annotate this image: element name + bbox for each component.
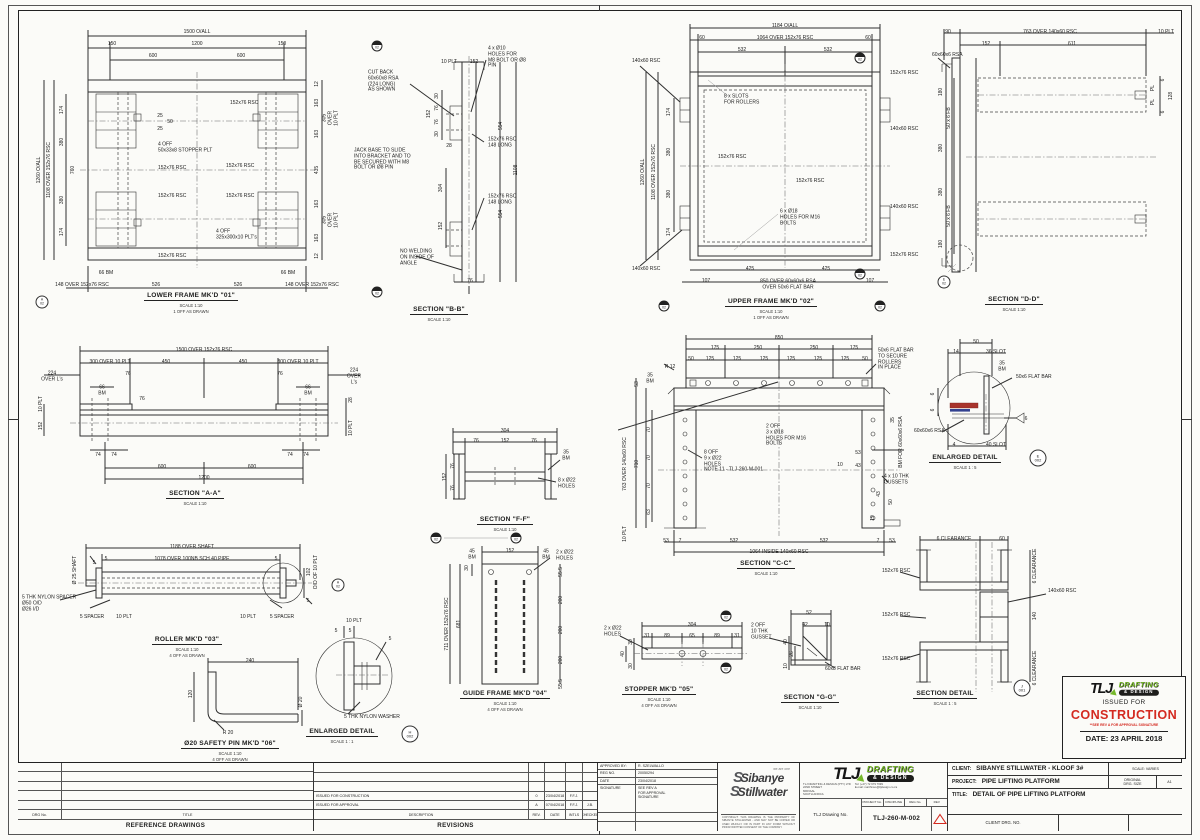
dim-label: 31 [734, 634, 740, 640]
dim-label: 6 CLEARANCE [937, 537, 972, 543]
revisions-col-rev: REV. [529, 810, 545, 819]
reference-empty-row [18, 782, 313, 791]
tlj-design-text: & DESIGN [1118, 689, 1158, 695]
dim-label: 7 [877, 539, 880, 545]
dim-label: PL [1151, 99, 1157, 105]
tlj-drafting-text: DRAFTING [867, 765, 914, 774]
section-marker: D 02 [855, 53, 866, 64]
view-scale: SCALE 1:10 [618, 571, 914, 576]
tlj-address: TLJ DRAFTING & DESIGN (PTY) LTD 22ND STR… [803, 783, 851, 797]
dim-label: 125 [814, 357, 822, 363]
dim-label: 53 [663, 539, 669, 545]
dim-label: 174 [60, 228, 66, 236]
dim-label: 180 [939, 240, 945, 248]
view-section-dd: 90763 OVER 140x60 RSC10 PLT15261160x60x6… [930, 20, 1188, 312]
dim-label: 40 [784, 639, 790, 645]
view-section-aa: 1500 OVER 152x76 RSC300 OVER 10 PLT45045… [30, 338, 360, 506]
dim-label: 600 [237, 54, 245, 60]
dim-label: 760 [71, 166, 77, 174]
drawing-number-row: TLJ Drawing No. PROJECT No. DISCIPLINE R… [800, 798, 947, 831]
dim-label: 5 [389, 637, 392, 643]
dim-label: 128 [1169, 92, 1175, 100]
dim-label: 380 [939, 188, 945, 196]
revisions-band: REVISIONS [314, 820, 597, 831]
dim-label: 175 [711, 346, 719, 352]
approval-empty-row [598, 822, 717, 831]
dim-label: 19 [871, 515, 877, 521]
section-marker: B 02 [372, 287, 383, 298]
dim-label: 148 OVER 152x76 RSC [55, 283, 109, 289]
dim-label: NO WELDING ON INSIDE OF ANGLE [400, 249, 434, 266]
tlj-logo: TLJ DRAFTING & DESIGN [1090, 681, 1159, 695]
construction-stamp: TLJ DRAFTING & DESIGN ISSUED FOR CONSTRU… [1062, 676, 1186, 759]
sibanye-line1: Sibanye [741, 771, 784, 785]
section-detail-j-title: SECTION DETAIL SCALE 1 : 5 [880, 682, 1080, 706]
original-size-label: ORIGINAL DRG. SIZE [1108, 776, 1156, 788]
dim-label: 711 OVER 152x76 RSC [445, 597, 451, 650]
tlj-block: TLJ DRAFTING & DESIGN TLJ DRAFTING & DES… [800, 763, 948, 831]
dim-label: 60x60x6 RSA [932, 53, 963, 59]
revision-checked [583, 792, 597, 800]
dim-label: 125 [733, 357, 741, 363]
view-title: SECTION "F-F" [477, 516, 533, 525]
revision-empty-row [314, 782, 597, 792]
scale-value: SCALE: VARIES [1108, 763, 1182, 775]
view-scale: SCALE 1 : 5 [912, 465, 1018, 470]
dim-label: 10 PLT [349, 420, 355, 436]
view-title: SECTION "A-A" [166, 490, 224, 499]
dim-label: 1200 [198, 476, 209, 482]
dim-label: 30 [629, 639, 635, 645]
dim-label: 300 OVER 10 PLT [89, 360, 130, 366]
view-note: 4 OFF AS DRAWN [20, 653, 354, 658]
dim-label: 305 OVER 10 PLT [322, 108, 339, 129]
dim-label: 152x76 RSC [882, 657, 910, 663]
dim-label: 425 [822, 267, 830, 273]
lower-frame-geometry [30, 14, 352, 314]
dim-label: 76 [473, 439, 479, 445]
view-note: 1 OFF AS DRAWN [628, 315, 914, 320]
view-scale: SCALE 1:10 [350, 317, 528, 322]
dim-label: 152 [470, 60, 478, 66]
view-scale: SCALE 1:10 [20, 647, 354, 652]
sibanye-block: we are one SSibanye SStillwater COPYRIGH… [718, 763, 800, 831]
approval-label: APPROVED BY: [598, 763, 636, 769]
dim-label: 140x60 RSC [1048, 589, 1076, 595]
dim-label: 2 x Ø22 HOLES [604, 626, 622, 638]
section-marker: D 02 [855, 269, 866, 280]
dim-label: 763 OVER 140x60 RSC [623, 437, 629, 491]
dim-label: 380 [60, 196, 66, 204]
col-project-no: PROJECT No. [862, 799, 884, 806]
dim-label: 12 [315, 253, 321, 259]
dim-label: 76 [451, 463, 457, 469]
dim-label: 1500 O/ALL [184, 30, 211, 36]
dim-label: 1064 OVER 152x76 RSC [757, 36, 813, 42]
view-scale: SCALE 1 : 1 [292, 739, 392, 744]
tlj-design-text: & DESIGN [867, 775, 914, 782]
dim-label: 152x76 RSC [890, 71, 918, 77]
revision-rev: 0 [529, 792, 545, 800]
dim-label: 50x6 FLAT BAR [1016, 375, 1052, 381]
dim-label: 175 [850, 346, 858, 352]
reference-drawings-table: DRG No. TITLE REFERENCE DRAWINGS [18, 763, 314, 831]
approval-value: 23/04/2018 [636, 778, 717, 784]
dim-label: 35 BM [646, 373, 654, 385]
dim-label: 14 [953, 350, 959, 356]
original-size-value: A1 [1156, 776, 1182, 788]
dim-label: 152x76 RSC [890, 253, 918, 259]
revision-triangle-icon [931, 807, 947, 831]
section-marker: H 002 [402, 726, 419, 743]
dim-label: 60 [865, 36, 871, 42]
revisions-col-intls: INTLS [566, 810, 583, 819]
revisions-header-row: DESCRIPTION REV. DATE INTLS CHECKED [314, 810, 597, 820]
dim-label: 53 [889, 539, 895, 545]
reference-col-drg-no: DRG No. [18, 810, 62, 819]
revisions-col-date: DATE [545, 810, 566, 819]
dim-label: 50 [167, 120, 173, 126]
dim-label: 6 CLEARANCE [1033, 549, 1039, 584]
view-scale: SCALE 1:10 [420, 701, 590, 706]
dim-label: 152x76 RSC [226, 164, 254, 170]
dim-label: 380 [60, 138, 66, 146]
dim-label: 89 [714, 634, 720, 640]
dim-label: 5 SPACER [80, 615, 104, 621]
dim-label: 25 [157, 127, 163, 133]
dim-label: 5 THK NYLON WASHER [344, 715, 400, 721]
dim-label: 40 SLOT [986, 443, 1006, 449]
dim-label: PL [1151, 85, 1157, 91]
dim-label: 10 PLT [346, 619, 362, 625]
dim-label: 63 [647, 509, 653, 515]
dim-label: 35 BM [562, 450, 570, 462]
project-label: PROJECT: [948, 776, 979, 788]
dim-label: 150 [278, 42, 286, 48]
view-title: ENLARGED DETAIL [306, 728, 377, 737]
dim-label: 10 [837, 463, 843, 469]
dim-label: 1108 OVER 152x76 RSC [47, 142, 53, 198]
dim-label: 6 CLEARANCE [1033, 651, 1039, 686]
drawing-title-label: TITLE: [948, 789, 970, 814]
view-title: Ø20 SAFETY PIN MK'D "06" [181, 740, 279, 749]
dim-label: 850 OVER 60x60x6 RSA OVER 50x6 FLAT BAR [760, 279, 816, 291]
section-marker: F 02 [511, 533, 522, 544]
approval-row: APPROVED BY:R. SZELWALLO [598, 763, 717, 770]
revision-description: ISSUED FOR APPROVAL [314, 801, 529, 809]
dim-label: 40 [621, 651, 627, 657]
client-value: SIBANYE STILLWATER - KLOOF 3# [973, 763, 1108, 775]
dim-label: 1200 [191, 42, 202, 48]
revision-intls: F.F.J. [566, 801, 583, 809]
dim-label: 120 [189, 690, 195, 698]
dim-label: 532 [738, 48, 746, 54]
view-scale: SCALE 1:10 [30, 501, 360, 506]
revision-date: 23/04/2018 [545, 792, 566, 800]
col-rev: REV [927, 799, 948, 806]
dim-label: 152 [427, 110, 433, 118]
dim-label: 55.5 [559, 567, 565, 577]
section-marker: H 02 [332, 579, 345, 592]
dim-label: 240 [246, 659, 254, 665]
copyright-text: COPYRIGHT: THIS DRAWING IS THE PROPERTY … [721, 814, 796, 829]
view-title: GUIDE FRAME MK'D "04" [460, 690, 550, 699]
project-value: PIPE LIFTING PLATFORM [979, 776, 1108, 788]
dim-label: 1500 OVER 152x76 RSC [176, 348, 232, 354]
dim-label: 8 x Ø22 HOLES [558, 478, 576, 490]
dim-label: 74 [303, 453, 309, 459]
dim-label: 60 [699, 36, 705, 42]
drawing-number-value: TLJ-260-M-002 [862, 815, 931, 822]
dim-label: 6 [931, 409, 937, 412]
dim-label: 35 [891, 417, 897, 423]
section-ff-title: SECTION "F-F" SCALE 1:10 [420, 508, 590, 532]
col-reg-no: REG No. [905, 799, 927, 806]
dim-label: 152x76 RSC [158, 166, 186, 172]
dim-label: 50 [688, 357, 694, 363]
section-marker: A 02 [36, 296, 49, 309]
sibanye-logo: SSibanye SStillwater [721, 771, 796, 799]
dim-label: 36 SLOT [986, 350, 1006, 356]
dim-label: R 12 [665, 365, 676, 371]
dim-label: CUT BACK 60x60x8 RSA (224 LONG) AS SHOWN [368, 71, 399, 94]
dim-label: 6 x Ø18 HOLES FOR M16 BOLTS [780, 209, 820, 226]
dim-label: 152x76 RSC [718, 155, 746, 161]
dim-label: 554 [499, 210, 505, 218]
dim-label: 150 [108, 42, 116, 48]
dim-label: 5 [275, 557, 278, 563]
dim-label: 1108 OVER 152x76 RSC [652, 144, 658, 200]
dim-label: 611 [1068, 42, 1076, 48]
dim-label: 50x6 FLAT BAR TO SECURE ROLLERS IN PLACE [878, 349, 914, 372]
dim-label: 4 [953, 443, 956, 449]
col-discipline: DISCIPLINE [884, 799, 906, 806]
dim-label: 7 [679, 539, 682, 545]
dim-label: 380 [667, 190, 673, 198]
dim-label: 200 [559, 656, 565, 664]
dim-label: 45 BM [468, 549, 476, 561]
revision-intls: F.F.J. [566, 792, 583, 800]
view-title: SECTION "D-D" [985, 296, 1043, 305]
dim-label: 6 [1025, 417, 1028, 423]
dim-label: 152x76 RSC [230, 101, 258, 107]
dim-label: 42 [802, 623, 808, 629]
dim-label: 76 [451, 485, 457, 491]
view-title: ENLARGED DETAIL [929, 454, 1000, 463]
dim-label: 681 [457, 620, 463, 628]
dim-label: 435 [315, 166, 321, 174]
view-scale: SCALE 1:10 [600, 697, 718, 702]
revision-checked: J.B. [583, 801, 597, 809]
dim-label: 4 OFF 50x33x8 STOPPER PLT [158, 142, 212, 154]
section-marker: G 02 [721, 611, 732, 622]
dim-label: 450 [239, 360, 247, 366]
dim-label: 152 [39, 422, 45, 430]
dim-label: 224 OVER L's [347, 368, 361, 385]
dim-label: 304 [688, 623, 696, 629]
dim-label: 152 [982, 42, 990, 48]
dim-label: 53 [855, 451, 861, 457]
dim-label: 174 [60, 106, 66, 114]
approval-label: REG NO. [598, 770, 636, 776]
section-marker: F 02 [431, 533, 442, 544]
dim-label: 26 [790, 651, 796, 657]
dim-label: 28 [446, 144, 452, 150]
tlj-wedge-icon [856, 773, 865, 782]
dim-label: 31 [644, 634, 650, 640]
section-bb-title: SECTION "B-B" SCALE 1:10 [350, 298, 528, 322]
dim-label: 1078 OVER 100NB SCH 40 PIPE [154, 557, 229, 563]
dim-label: 140x60 RSC [632, 267, 660, 273]
dim-label: BM FOR 60x60x6 RSA [899, 416, 905, 467]
dim-label: 6 [1161, 111, 1167, 114]
dim-label: 380 [939, 144, 945, 152]
view-scale: SCALE 1:10 [745, 705, 875, 710]
view-title: SECTION "B-B" [410, 306, 468, 315]
dim-label: 152x76 RSC [158, 194, 186, 200]
sibanye-line2: Stillwater [738, 785, 787, 799]
dim-label: 66 BM [304, 385, 312, 397]
dim-label: 30 [465, 565, 471, 571]
dim-label: 25 [157, 114, 163, 120]
dim-label: 532 [820, 539, 828, 545]
dim-label: 6 [1161, 79, 1167, 82]
section-marker: G 02 [721, 663, 732, 674]
section-aa-title: SECTION "A-A" SCALE 1:10 [30, 482, 360, 506]
dim-label: 30 [435, 131, 441, 137]
view-title: UPPER FRAME MK'D "02" [725, 298, 817, 307]
approval-row: REG NO.20050294 [598, 770, 717, 777]
dim-label: 5 [349, 629, 352, 635]
approval-row: DATE23/04/2018 [598, 778, 717, 785]
dim-label: 152x76 RSC 148 LONG [488, 194, 516, 206]
dim-label: 5 [335, 629, 338, 635]
dim-label: 60x60x6 RSA [914, 429, 945, 435]
revision-row: ISSUED FOR APPROVAL A 07/04/2018 F.F.J. … [314, 801, 597, 810]
dim-label: 60 [999, 537, 1005, 543]
view-scale: SCALE 1:10 [150, 751, 310, 756]
dim-label: 30 [629, 663, 635, 669]
view-section-ff: 3047615276152767635 BM8 x Ø22 HOLES SECT… [420, 420, 590, 532]
view-lower-frame-01: 1500 O/ALL15012001506006001260 O/ALL1108… [30, 14, 352, 314]
dim-label: 710 [635, 460, 641, 468]
dim-label: 65 [689, 634, 695, 640]
view-enlarged-detail-e: 501436 SLOT35 BM50x6 FLAT BAR6660x60x6 R… [912, 336, 1062, 470]
stopper-title: STOPPER MK'D "05" SCALE 1:10 4 OFF AS DR… [600, 678, 748, 708]
view-note: 1 OFF AS DRAWN [30, 309, 352, 314]
dim-label: 74 [111, 453, 117, 459]
dim-label: 174 [667, 228, 673, 236]
dim-label: 140x60 RSC [890, 127, 918, 133]
tlj-wedge-icon [1109, 688, 1117, 695]
dim-label: 50 [862, 357, 868, 363]
section-marker: B 02 [372, 41, 383, 52]
drawing-number-label: TLJ Drawing No. [800, 799, 862, 831]
dim-label: 76 [139, 397, 145, 403]
dim-label: 152x76 RSC [158, 254, 186, 260]
stamp-date: DATE: 23 APRIL 2018 [1080, 731, 1169, 743]
dim-label: 4 x Ø10 HOLES FOR M8 BOLT OR Ø8 PIN [488, 47, 528, 70]
dim-label: 50 x 6 FB [947, 107, 953, 128]
dim-label: 10 [824, 623, 830, 629]
dim-label: 53 [635, 381, 641, 387]
dim-label: 250 [810, 346, 818, 352]
section-marker: C 02 [659, 301, 670, 312]
dim-label: 140 [1033, 612, 1039, 620]
reference-empty-row [18, 791, 313, 800]
dim-label: 600 [158, 465, 166, 471]
dim-label: 224 OVER L's [41, 371, 63, 383]
dim-label: 1064 INSIDE 140x60 RSC [750, 550, 809, 556]
dim-label: JACK BASE TO SLIDE INTO BRACKET AND TO B… [354, 149, 411, 172]
dim-label: 125 [760, 357, 768, 363]
dim-label: 526 [234, 283, 242, 289]
dim-label: 55.5 [559, 679, 565, 689]
dim-label: 8 x SLOTS FOR ROLLERS [724, 94, 759, 106]
view-title: SECTION DETAIL [913, 690, 976, 699]
revision-empty-row [314, 763, 597, 773]
upper-frame-geometry [628, 12, 914, 320]
dim-label: 532 [730, 539, 738, 545]
dim-label: 200 [559, 596, 565, 604]
tlj-logo: TLJ DRAFTING & DESIGN [833, 765, 914, 782]
drawing-number-headers: PROJECT No. DISCIPLINE REG No. REV [862, 799, 947, 807]
revision-empty-row [314, 773, 597, 783]
dim-label: 10 PLT [623, 526, 629, 542]
view-note: 4 OFF AS DRAWN [600, 703, 718, 708]
client-drg-no-label: CLIENT DRG. NO. [948, 815, 1058, 831]
border-tick [599, 5, 600, 11]
dim-label: 50 x 6 FB [947, 205, 953, 226]
dim-label: 300 OVER 10 PLT [277, 360, 318, 366]
dim-label: 163 [315, 130, 321, 138]
dim-label: 304 [501, 429, 509, 435]
section-gg-title: SECTION "G-G" SCALE 1:10 [745, 686, 875, 710]
section-dd-geometry [930, 20, 1188, 312]
dim-label: 180 [939, 88, 945, 96]
dim-label: 250 [754, 346, 762, 352]
dim-label: 450 [162, 360, 170, 366]
dim-label: 30 [435, 93, 441, 99]
client-label: CLIENT: [948, 763, 973, 775]
reference-col-title: TITLE [62, 810, 313, 819]
border-tick [8, 419, 19, 420]
section-marker: E 02 [938, 276, 951, 289]
dim-label: 52 [806, 611, 812, 617]
revisions-table: ISSUED FOR CONSTRUCTION 0 23/04/2018 F.F… [314, 763, 598, 831]
dim-label: 304 [439, 184, 445, 192]
view-title: STOPPER MK'D "05" [622, 686, 697, 695]
dim-label: 163 [315, 234, 321, 242]
approval-block: APPROVED BY:R. SZELWALLO REG NO.20050294… [598, 763, 718, 831]
dim-label: 4 OFF 325x300x10 PLT's [216, 229, 257, 241]
dim-label: 66 BM [99, 271, 113, 277]
dim-label: Ø 25 SHAFT [73, 556, 79, 585]
dim-label: 532 [824, 48, 832, 54]
dim-label: 10 PLT [116, 615, 132, 621]
dim-label: 10 PLT [1158, 30, 1174, 36]
view-upper-frame-02: 1184 O/ALL601064 OVER 152x76 RSC60532532… [628, 12, 914, 320]
dim-label: 5 [93, 561, 96, 567]
section-marker: J 001 [1014, 680, 1031, 697]
dim-label: 1108 [514, 165, 520, 176]
dim-label: 1184 O/ALL [772, 24, 798, 30]
dim-label: 66 BM [281, 271, 295, 277]
revision-triangle [933, 813, 947, 825]
view-scale: SCALE 1:10 [420, 527, 590, 532]
dim-label: 66 BM [98, 385, 106, 397]
dim-label: 163 [315, 99, 321, 107]
